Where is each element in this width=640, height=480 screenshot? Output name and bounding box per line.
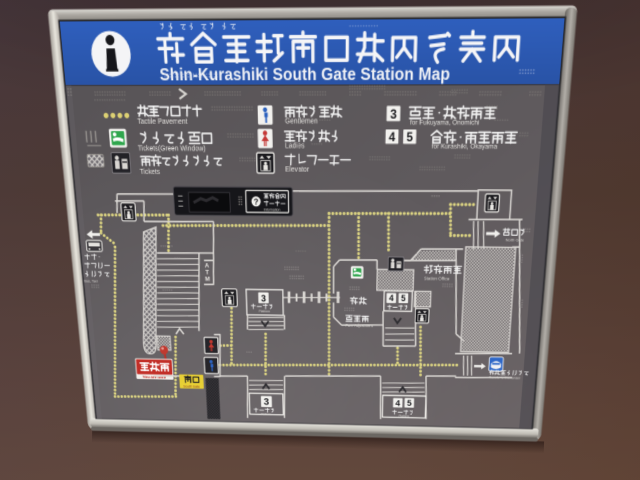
svg-text:South Gate: South Gate	[183, 384, 200, 388]
svg-text:Gentlemen: Gentlemen	[285, 116, 318, 125]
svg-text:5: 5	[406, 130, 413, 144]
svg-text:M: M	[205, 276, 210, 282]
svg-text:4: 4	[389, 130, 396, 144]
svg-text:5: 5	[401, 294, 406, 304]
svg-text:Ladies: Ladies	[285, 141, 305, 150]
svg-text:3: 3	[390, 106, 397, 121]
svg-text:?: ?	[254, 197, 259, 207]
svg-text:Tickets: Tickets	[140, 167, 161, 176]
svg-text:Bus, Taxi: Bus, Taxi	[84, 278, 98, 283]
svg-text:4: 4	[395, 399, 400, 408]
svg-text:Station Office: Station Office	[424, 276, 450, 282]
svg-text:Shin-Kurashiki South Gate Stat: Shin-Kurashiki South Gate Station Map	[159, 64, 451, 85]
svg-text:5: 5	[407, 399, 412, 408]
svg-text:Elevator: Elevator	[285, 165, 310, 174]
svg-text:North Gate: North Gate	[505, 238, 524, 243]
svg-text:for Fukuyama, Onomichi: for Fukuyama, Onomichi	[410, 119, 480, 126]
svg-text:Tickets(Green Window): Tickets(Green Window)	[138, 144, 207, 153]
svg-text:3: 3	[261, 293, 266, 304]
svg-text:Platform: Platform	[259, 310, 270, 314]
svg-text:Transfer to Shinkansen: Transfer to Shinkansen	[489, 376, 521, 380]
svg-text:4: 4	[389, 294, 394, 304]
svg-text:3: 3	[264, 397, 270, 408]
svg-text:Platform: Platform	[261, 413, 271, 416]
svg-text:Tactile Pavement: Tactile Pavement	[137, 116, 188, 125]
svg-text:A: A	[205, 263, 210, 269]
svg-text:Information: Information	[264, 208, 281, 212]
svg-text:for Kurashiki, Okayama: for Kurashiki, Okayama	[431, 144, 497, 151]
svg-text:Fare Adjustment: Fare Adjustment	[345, 323, 373, 328]
svg-text:Platform: Platform	[399, 415, 410, 419]
